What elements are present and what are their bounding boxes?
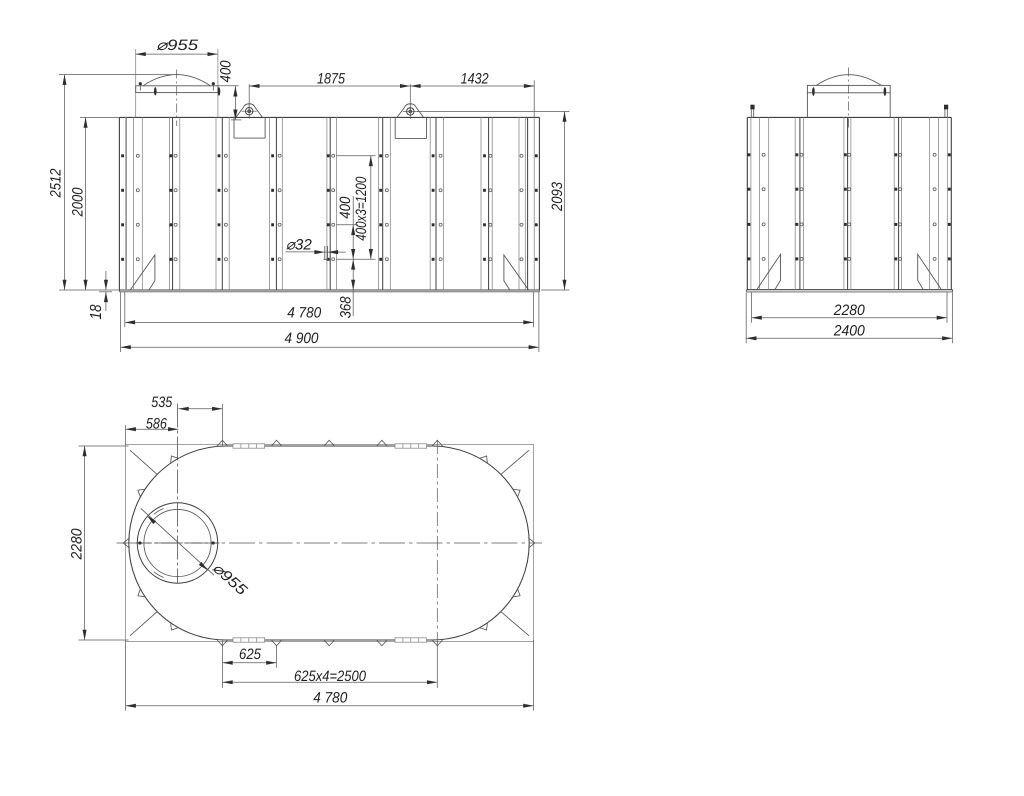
svg-text:535: 535 — [151, 394, 173, 411]
svg-text:2400: 2400 — [833, 323, 866, 340]
svg-text:1432: 1432 — [461, 70, 490, 87]
svg-text:⌀32: ⌀32 — [286, 236, 313, 253]
svg-text:4 780: 4 780 — [287, 305, 322, 322]
svg-text:4 780: 4 780 — [313, 690, 348, 707]
svg-text:625: 625 — [239, 646, 262, 663]
svg-text:2280: 2280 — [69, 528, 86, 561]
svg-text:2093: 2093 — [549, 181, 566, 211]
svg-text:400x3=1200: 400x3=1200 — [353, 176, 370, 241]
svg-text:400: 400 — [337, 196, 354, 219]
svg-text:1875: 1875 — [317, 70, 346, 87]
svg-text:2000: 2000 — [69, 187, 86, 217]
svg-text:586: 586 — [146, 416, 168, 433]
svg-text:625x4=2500: 625x4=2500 — [294, 668, 367, 685]
svg-text:2280: 2280 — [833, 302, 866, 319]
svg-text:4 900: 4 900 — [285, 330, 320, 347]
svg-text:2512: 2512 — [47, 168, 64, 198]
svg-text:⌀955: ⌀955 — [156, 37, 199, 54]
svg-text:368: 368 — [337, 296, 354, 319]
svg-text:18: 18 — [88, 304, 105, 319]
svg-text:400: 400 — [218, 60, 235, 83]
